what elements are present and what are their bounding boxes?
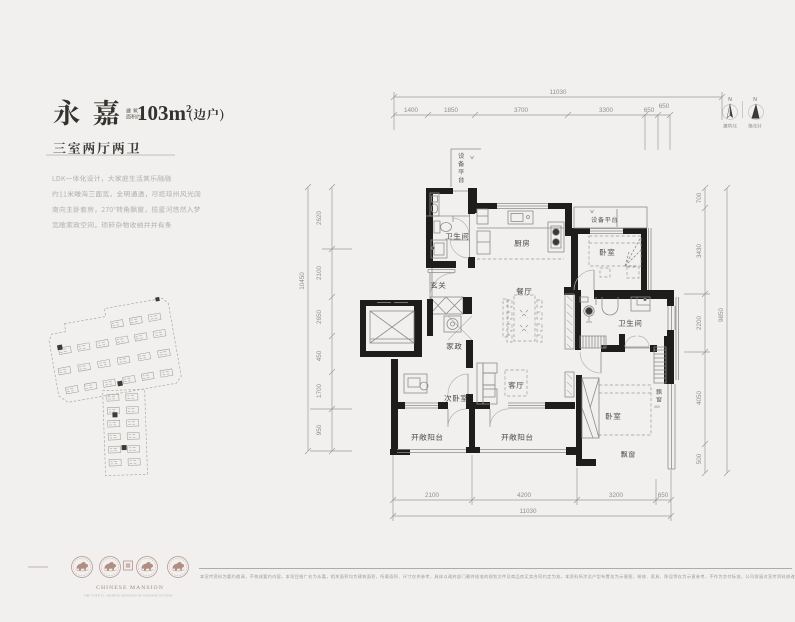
svg-text:700: 700: [696, 192, 703, 203]
svg-text:11030: 11030: [549, 89, 567, 96]
svg-text:CHINESE MANSION: CHINESE MANSION: [96, 585, 164, 591]
svg-text:450: 450: [316, 350, 323, 361]
svg-text:1400: 1400: [404, 107, 419, 114]
svg-text:3700: 3700: [514, 107, 529, 114]
svg-text:3300: 3300: [599, 107, 614, 114]
svg-text:650: 650: [658, 492, 669, 499]
svg-text:2650: 2650: [316, 310, 323, 325]
svg-text:950: 950: [316, 424, 323, 435]
svg-text:THE TOP ETC CHINESE MANSION OF: THE TOP ETC CHINESE MANSION OF HUMANE SY…: [84, 594, 173, 598]
svg-text:4050: 4050: [696, 391, 703, 406]
svg-text:2100: 2100: [425, 492, 440, 499]
svg-text:3430: 3430: [696, 244, 703, 259]
svg-text:2620: 2620: [316, 211, 323, 226]
svg-text:4200: 4200: [517, 492, 532, 499]
svg-text:1700: 1700: [316, 384, 323, 399]
svg-text:650: 650: [659, 103, 670, 110]
svg-text:9850: 9850: [718, 308, 725, 323]
svg-text:500: 500: [696, 453, 703, 464]
svg-text:3200: 3200: [609, 492, 624, 499]
svg-text:2200: 2200: [696, 316, 703, 331]
svg-text:10450: 10450: [299, 272, 306, 290]
svg-text:650: 650: [644, 107, 655, 114]
svg-text:本宣传资料为要约邀请，不构成要约内容。本项目推广名为永嘉，相: 本宣传资料为要约邀请，不构成要约内容。本项目推广名为永嘉，相关面积均为建筑面积，…: [200, 573, 795, 580]
svg-text:103m2: 103m2: [137, 101, 191, 125]
svg-text:1850: 1850: [444, 107, 459, 114]
svg-text:N: N: [728, 97, 732, 103]
svg-text:450: 450: [654, 405, 660, 409]
svg-text:2100: 2100: [316, 266, 323, 281]
svg-text:11030: 11030: [519, 508, 537, 515]
svg-text:N: N: [753, 97, 757, 103]
